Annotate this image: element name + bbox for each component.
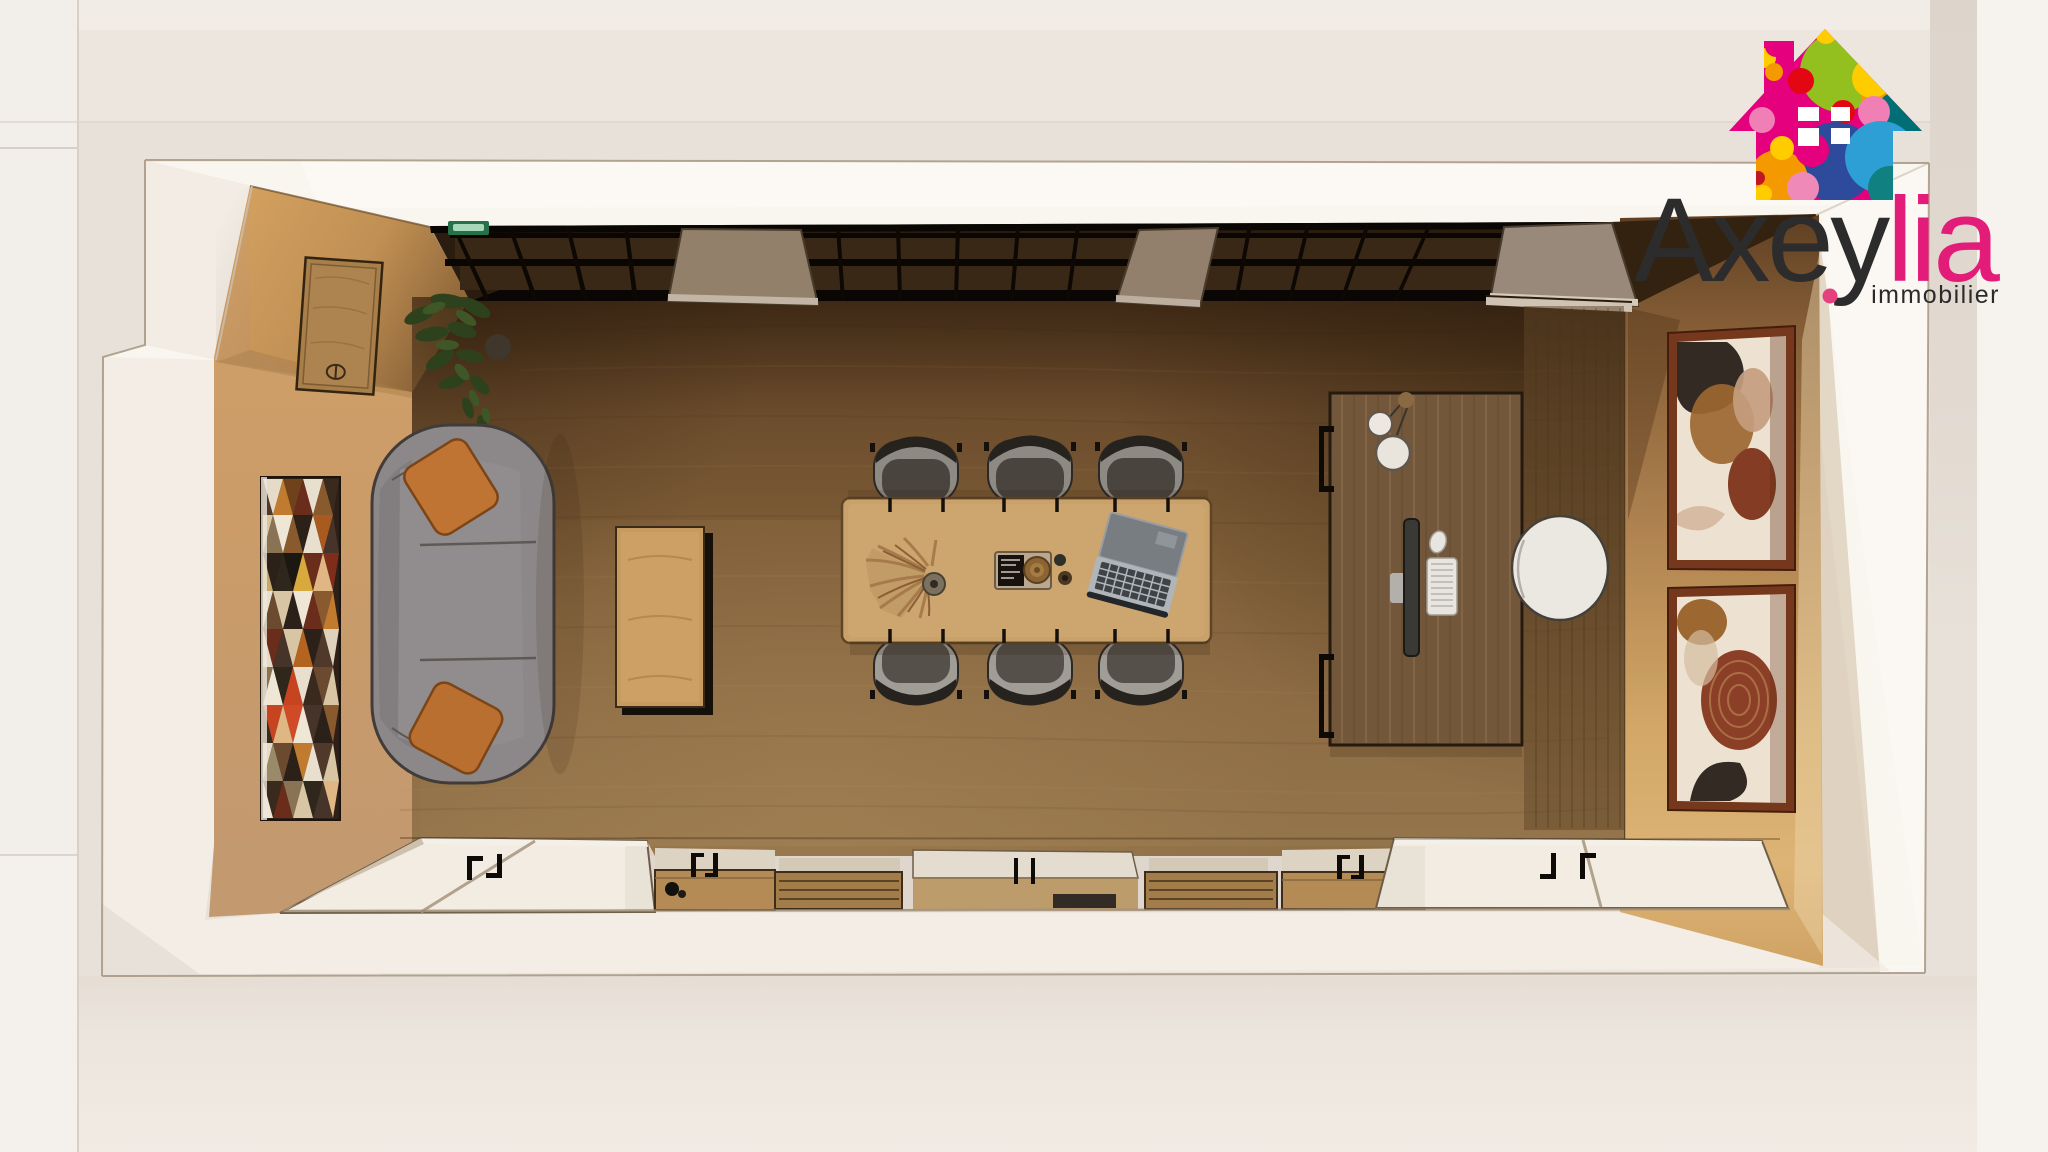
- svg-text:immobilier: immobilier: [1871, 281, 2000, 309]
